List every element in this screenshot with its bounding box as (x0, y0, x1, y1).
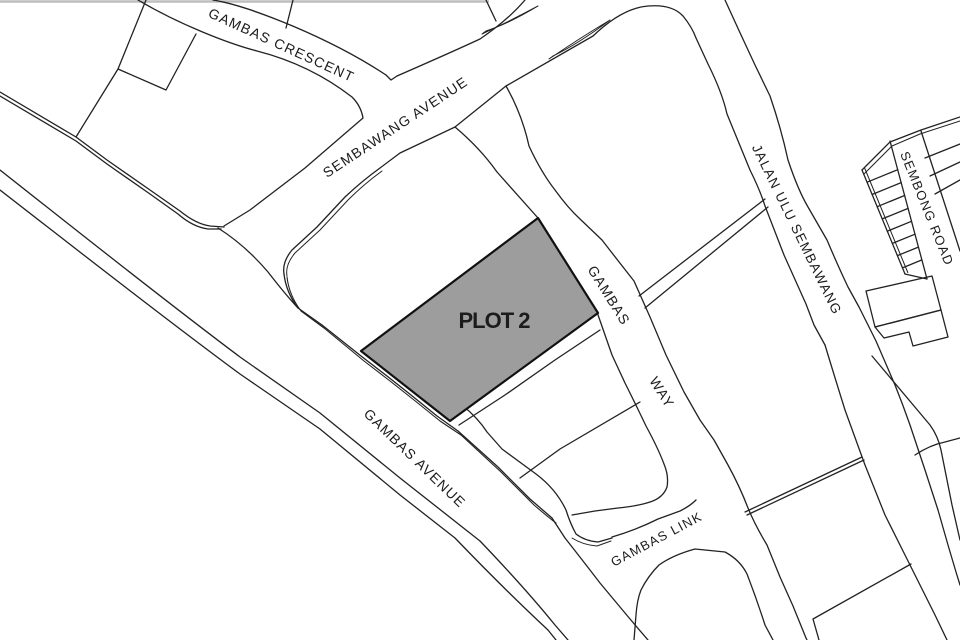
svg-text:PLOT 2: PLOT 2 (458, 308, 530, 333)
